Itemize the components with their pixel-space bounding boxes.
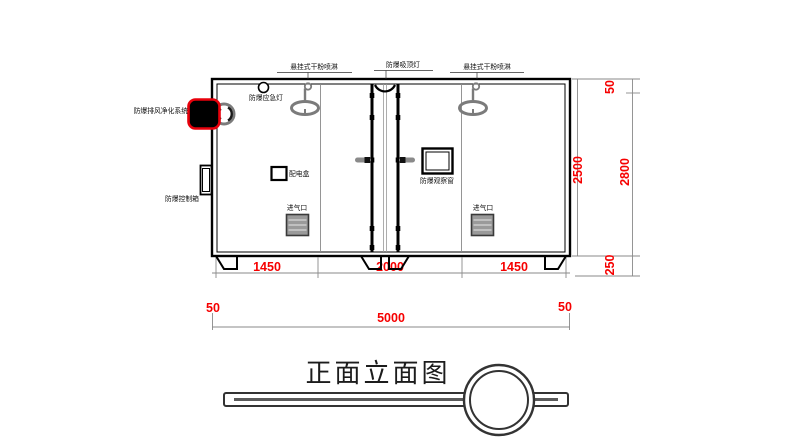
dim-inner-height: 2500 [571,156,585,184]
emergency-light [259,83,269,93]
label-emergency-light: 防爆应急灯 [249,93,283,102]
dim-roof: 50 [603,80,617,94]
dim-left-bay: 1450 [253,260,281,274]
elevation-drawing: 1450 2000 1450 [0,0,800,445]
dimension-row-segments: 1450 2000 1450 [212,257,570,278]
dim-right-bay: 1450 [500,260,528,274]
purification-unit [189,100,235,129]
label-observation-window: 防爆观察窗 [420,176,454,185]
foot-left [216,256,237,269]
label-air-inlet-left: 进气口 [287,203,307,212]
container-outline [212,79,570,256]
dim-overall-height: 2800 [618,158,632,186]
foot-right [545,256,566,269]
label-air-inlet-right: 进气口 [473,203,493,212]
dim-base: 250 [603,255,617,276]
label-sprinkler-right: 悬挂式干粉喷淋 [463,62,511,71]
title-circle [464,365,534,435]
label-power-box: 配电盒 [289,169,310,178]
air-inlet-vent-right [472,215,494,236]
power-box [272,167,287,180]
label-ceiling-light: 防爆吸顶灯 [386,60,420,69]
control-box [201,166,212,195]
dim-wall-left: 50 [206,301,220,315]
drawing-title: 正面立面图 [305,359,450,389]
air-inlet-vent-left [287,215,309,236]
label-sprinkler-left: 悬挂式干粉喷淋 [290,62,338,71]
dim-wall-right: 50 [558,300,572,314]
observation-window [423,149,453,174]
dimension-row-overall: 50 5000 50 [206,300,572,330]
label-control-box: 防爆控制箱 [165,194,199,203]
dim-overall-width: 5000 [377,311,405,325]
highlight-box [189,100,220,129]
label-purification-system: 防爆排风净化系统 [134,106,189,115]
dimension-column-right: 2500 50 2800 250 [571,79,640,276]
